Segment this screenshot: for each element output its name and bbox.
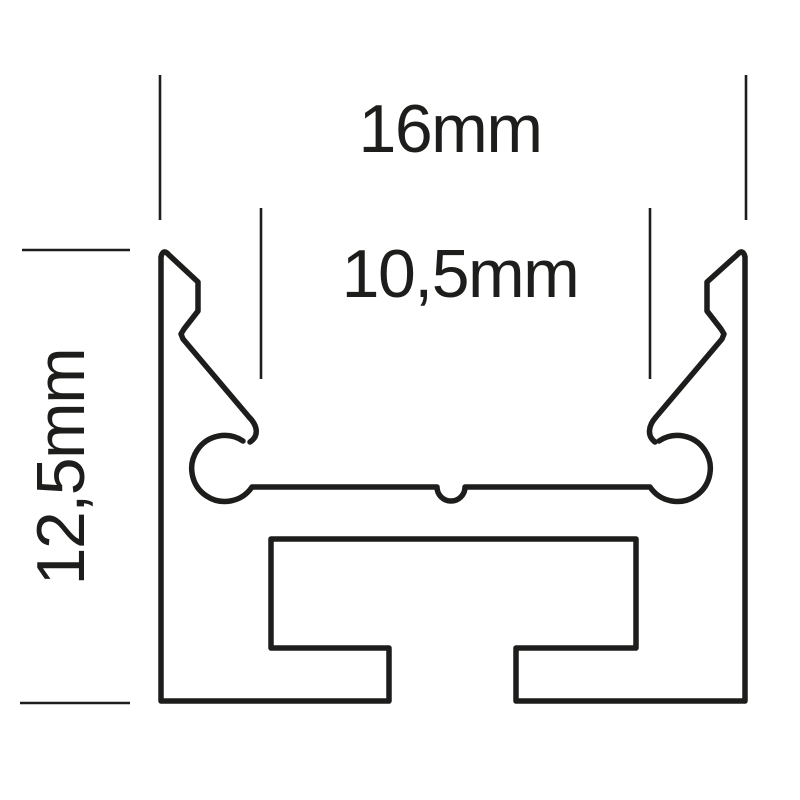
dimension-label-inner-width: 10,5mm [310, 240, 610, 308]
diagram-canvas: 16mm 10,5mm 12,5mm [0, 0, 800, 800]
profile-shelf-and-bulbs [192, 435, 711, 501]
dimension-label-top-width: 16mm [300, 95, 600, 163]
dimension-label-height: 12,5mm [27, 349, 95, 586]
profile-outline [161, 252, 745, 701]
